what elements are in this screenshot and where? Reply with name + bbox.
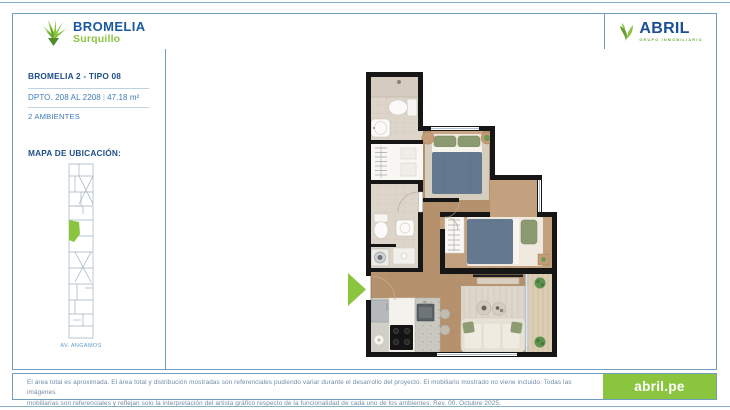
header: BROMELIA Surquillo ABRIL GRUPO INMOBILIA… <box>12 13 717 50</box>
sidebar-divider-1 <box>28 88 149 89</box>
tv-console <box>477 278 519 284</box>
highlighted-unit <box>69 220 80 242</box>
duvet <box>467 219 513 264</box>
sidebar: BROMELIA 2 - TIPO 08 DPTO. 208 AL 2208|4… <box>12 49 164 370</box>
pillow <box>521 220 537 244</box>
floor-plan <box>341 68 567 364</box>
brand-logo: BROMELIA Surquillo <box>42 19 146 46</box>
disclaimer-line-2: mobiliarias son referenciales y reflejan… <box>27 399 595 409</box>
plant-icon <box>541 257 546 262</box>
nightstand <box>422 132 434 144</box>
unit-info: DPTO. 208 AL 2208|47.18 m² <box>28 93 139 102</box>
developer-tagline: GRUPO INMOBILIARIO <box>639 38 702 42</box>
rooms-count: 2 AMBIENTES <box>28 112 80 121</box>
brand-location: Surquillo <box>73 34 146 45</box>
unit-number: DPTO. 208 AL 2208 <box>28 93 101 102</box>
pillow <box>458 136 480 147</box>
coffee-table <box>493 303 506 316</box>
sidebar-divider-2 <box>28 107 149 108</box>
flyer-page: BROMELIA Surquillo ABRIL GRUPO INMOBILIA… <box>0 0 730 410</box>
disclaimer-line-1: El área total es aproximada. El área tot… <box>27 378 595 399</box>
top-frame-line <box>0 2 730 3</box>
abril-leaf-icon <box>619 22 634 42</box>
plant-icon <box>535 337 546 348</box>
sink <box>396 220 414 236</box>
shower-drain-icon <box>397 80 401 84</box>
cooktop <box>390 325 413 350</box>
location-map-drawing <box>65 162 97 340</box>
floor-plan-drawing <box>341 68 567 364</box>
sofa-pillow <box>462 321 474 333</box>
toilet-tank <box>407 99 417 116</box>
bedroom-1 <box>422 131 493 200</box>
entrance-arrow-icon <box>348 273 366 306</box>
developer-logo: ABRIL GRUPO INMOBILIARIO <box>605 14 717 49</box>
fridge <box>371 300 389 322</box>
bromelia-leaf-icon <box>42 19 66 46</box>
duvet <box>432 152 482 194</box>
footer: El área total es aproximada. El área tot… <box>12 373 717 400</box>
disclaimer-text: El área total es aproximada. El área tot… <box>13 374 603 399</box>
sofa-pillow <box>510 321 522 333</box>
stool <box>440 309 450 319</box>
plant-icon <box>484 135 490 141</box>
location-map-title: MAPA DE UBICACIÓN: <box>28 148 121 158</box>
location-map <box>65 162 97 340</box>
brand-name: BROMELIA <box>73 20 146 34</box>
tv <box>473 275 523 278</box>
unit-title: BROMELIA 2 - TIPO 08 <box>28 71 121 81</box>
entry-door-gap <box>366 276 371 300</box>
unit-area: 47.18 m² <box>107 93 139 102</box>
avenue-label: AV. ANGAMOS <box>42 343 120 349</box>
sidebar-right-border <box>165 49 166 369</box>
plant-icon <box>535 278 546 289</box>
website-link[interactable]: abril.pe <box>603 374 716 399</box>
toilet <box>374 222 388 239</box>
developer-name: ABRIL <box>639 21 689 37</box>
pillow <box>434 136 456 147</box>
toilet <box>389 100 408 115</box>
stool <box>440 325 450 335</box>
